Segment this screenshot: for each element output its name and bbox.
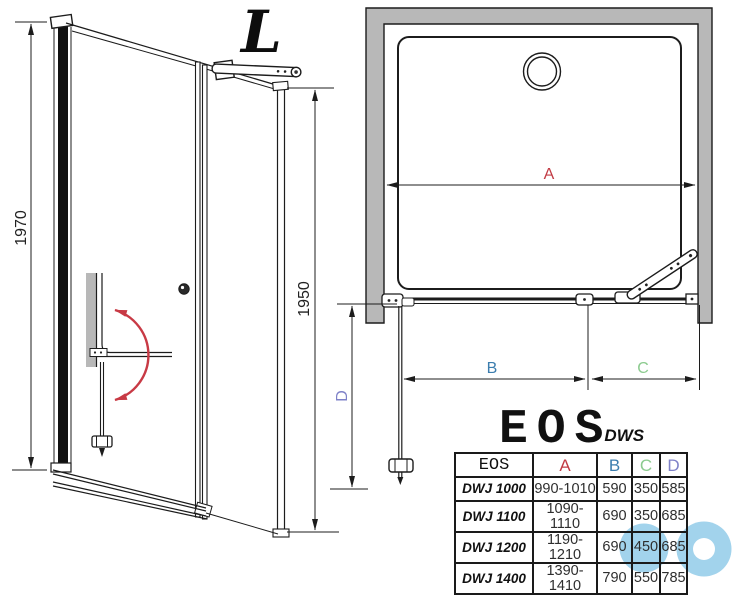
table-row: DWJ 1400 1390-1410 790 550 785 xyxy=(455,563,687,594)
dim-d: D xyxy=(330,304,397,489)
value-a: 1190-1210 xyxy=(533,532,597,563)
dim-height-1970: 1970 xyxy=(12,22,47,470)
value-c: 450 xyxy=(632,532,660,563)
diagonal-support-bar xyxy=(626,248,699,300)
height-inner-value: 1950 xyxy=(296,281,313,317)
product-drawing-page: L 1970 xyxy=(0,0,740,596)
size-table-header-row: EOS A B C D xyxy=(455,453,687,477)
door-handle xyxy=(179,284,189,294)
wall-bracket xyxy=(382,294,403,307)
dim-b-label: B xyxy=(487,360,498,377)
value-b: 690 xyxy=(597,501,632,532)
brand-logo: EOSDWS xyxy=(499,403,644,457)
swing-direction-arrow xyxy=(115,310,148,400)
table-row: DWJ 1000 990-1010 590 350 585 xyxy=(455,477,687,501)
middle-post xyxy=(195,62,212,519)
dim-a: A xyxy=(387,166,695,185)
open-door xyxy=(389,306,413,485)
value-c: 350 xyxy=(632,501,660,532)
value-d: 685 xyxy=(660,501,687,532)
left-wall-profile xyxy=(50,15,72,472)
value-b: 590 xyxy=(597,477,632,501)
header-d: D xyxy=(660,453,687,477)
header-b: B xyxy=(597,453,632,477)
height-outer-value: 1970 xyxy=(13,210,30,246)
value-d: 785 xyxy=(660,563,687,594)
table-row: DWJ 1100 1090-1110 690 350 685 xyxy=(455,501,687,532)
right-post xyxy=(273,81,289,537)
threshold-rail xyxy=(53,470,278,534)
model-name: DWJ 1100 xyxy=(455,501,533,532)
model-name: DWJ 1000 xyxy=(455,477,533,501)
dim-a-label: A xyxy=(544,166,555,183)
value-a: 990-1010 xyxy=(533,477,597,501)
schematic-handle xyxy=(92,436,112,447)
brand-logo-text: EOS xyxy=(499,403,612,457)
table-row: DWJ 1200 1190-1210 690 450 685 xyxy=(455,532,687,563)
pivot-hinge xyxy=(402,298,414,306)
shower-tray xyxy=(398,37,681,289)
variant-letter: L xyxy=(239,0,282,66)
swing-schematic xyxy=(86,273,172,457)
dim-c-label: C xyxy=(637,360,649,377)
header-c: C xyxy=(632,453,660,477)
value-c: 550 xyxy=(632,563,660,594)
value-d: 685 xyxy=(660,532,687,563)
value-c: 350 xyxy=(632,477,660,501)
value-b: 690 xyxy=(597,532,632,563)
header-a: A xyxy=(533,453,597,477)
dim-d-label: D xyxy=(334,390,351,402)
value-d: 585 xyxy=(660,477,687,501)
open-door-handle xyxy=(389,459,413,472)
value-a: 1090-1110 xyxy=(533,501,597,532)
size-table: EOS A B C D DWJ 1000 990-1010 590 350 58… xyxy=(454,452,688,595)
elevation-view: L 1970 xyxy=(12,0,339,537)
dim-c: C xyxy=(592,360,696,379)
dim-b: B xyxy=(404,360,585,379)
model-name: DWJ 1200 xyxy=(455,532,533,563)
header-model: EOS xyxy=(455,453,533,477)
value-b: 790 xyxy=(597,563,632,594)
drain xyxy=(524,53,561,90)
dim-height-1950: 1950 xyxy=(287,88,339,532)
door-assembly xyxy=(382,248,699,307)
model-name: DWJ 1400 xyxy=(455,563,533,594)
value-a: 1390-1410 xyxy=(533,563,597,594)
brand-logo-series: DWS xyxy=(604,426,644,445)
